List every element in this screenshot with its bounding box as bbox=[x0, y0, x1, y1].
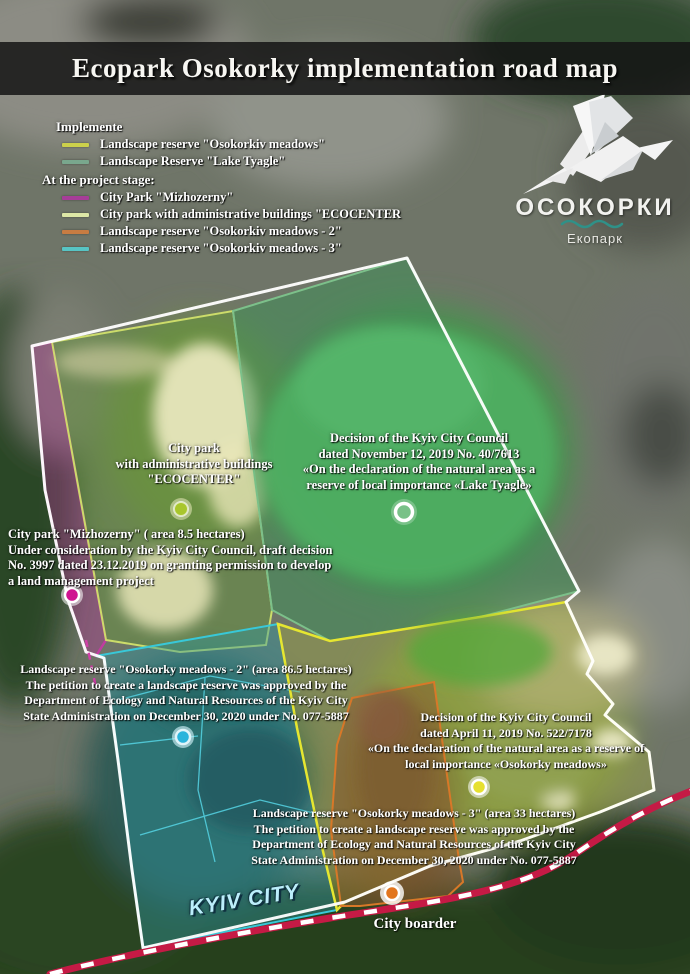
page-title: Ecopark Osokorky implementation road map bbox=[0, 42, 690, 95]
legend-item-meadows-3[interactable]: Landscape reserve "Osokorkiv meadows - 3… bbox=[62, 242, 401, 255]
logo-subtitle: Екопарк bbox=[500, 231, 690, 246]
swatch-line-icon bbox=[62, 196, 89, 200]
swatch-line-icon bbox=[62, 213, 89, 217]
annotation-tyagle-decision: Decision of the Kyiv City Council dated … bbox=[283, 431, 555, 493]
infographic-map-page: Ecopark Osokorky implementation road map… bbox=[0, 0, 690, 974]
city-border-label: City boarder bbox=[345, 917, 485, 933]
marker-mizhozerny[interactable] bbox=[65, 588, 79, 602]
legend-item-lake-tyagle[interactable]: Landscape Reserve "Lake Tyagle" bbox=[62, 155, 401, 168]
marker-meadows[interactable] bbox=[472, 780, 486, 794]
legend-item-mizhozerny[interactable]: City Park "Mizhozerny" bbox=[62, 191, 401, 204]
legend-header-project-stage: At the project stage: bbox=[42, 172, 401, 188]
swatch-line-icon bbox=[62, 247, 89, 251]
annotation-meadows-3: Landscape reserve "Osokorky meadows - 3"… bbox=[226, 806, 602, 868]
legend-item-osokorkiv-meadows[interactable]: Landscape reserve "Osokorkiv meadows" bbox=[62, 138, 401, 151]
legend-item-meadows-2[interactable]: Landscape reserve "Osokorkiv meadows - 2… bbox=[62, 225, 401, 238]
annotation-meadows-2: Landscape reserve "Osokorky meadows - 2"… bbox=[0, 662, 372, 724]
annotation-meadows-decision: Decision of the Kyiv City Council dated … bbox=[356, 710, 656, 772]
swatch-line-icon bbox=[62, 143, 89, 147]
marker-ecocenter[interactable] bbox=[174, 502, 188, 516]
annotation-ecocenter: City park with administrative buildings … bbox=[88, 441, 300, 488]
legend: Implemente Landscape reserve "Osokorkiv … bbox=[42, 117, 401, 259]
legend-header-implemented: Implemente bbox=[56, 119, 401, 135]
logo-brand: ОСОКОРКИ bbox=[500, 194, 690, 222]
marker-meadows-2[interactable] bbox=[176, 730, 190, 744]
title-banner: Ecopark Osokorky implementation road map bbox=[0, 42, 690, 95]
annotation-mizhozerny: City park "Mizhozerny" ( area 8.5 hectar… bbox=[8, 527, 344, 589]
origami-heron-icon bbox=[523, 94, 673, 194]
swatch-line-icon bbox=[62, 230, 89, 234]
marker-meadows-3[interactable] bbox=[385, 886, 399, 900]
swatch-line-icon bbox=[62, 160, 89, 164]
legend-item-ecocenter[interactable]: City park with administrative buildings … bbox=[62, 208, 401, 221]
